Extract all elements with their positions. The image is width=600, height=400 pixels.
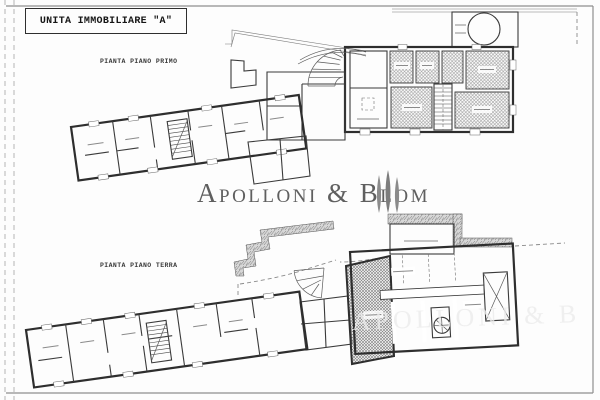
first-floor-connector [267, 48, 366, 140]
staircase [434, 84, 452, 130]
ground-floor-plan: APOLLONI & B [26, 214, 581, 390]
first-floor-right-block [345, 45, 516, 136]
staircase [146, 320, 171, 362]
tower-circle [452, 12, 518, 47]
ground-floor-left-wing [26, 289, 308, 390]
retaining-wall-hatch [234, 221, 334, 276]
cypress-trees-icon [374, 169, 402, 215]
staircase [167, 119, 192, 159]
first-floor-label: PIANTA PIANO PRIMO [100, 58, 177, 65]
title-box-label: UNITA IMMOBILIARE "A" [40, 16, 172, 27]
first-floor-plan [71, 9, 577, 184]
title-box: UNITA IMMOBILIARE "A" [25, 8, 187, 34]
scan-page: APOLLONI & B [0, 0, 600, 400]
ground-floor-connector [300, 296, 352, 350]
first-floor-annex [248, 136, 310, 184]
ground-floor-label: PIANTA PIANO TERRA [100, 262, 177, 269]
spiral-stair [308, 50, 344, 86]
